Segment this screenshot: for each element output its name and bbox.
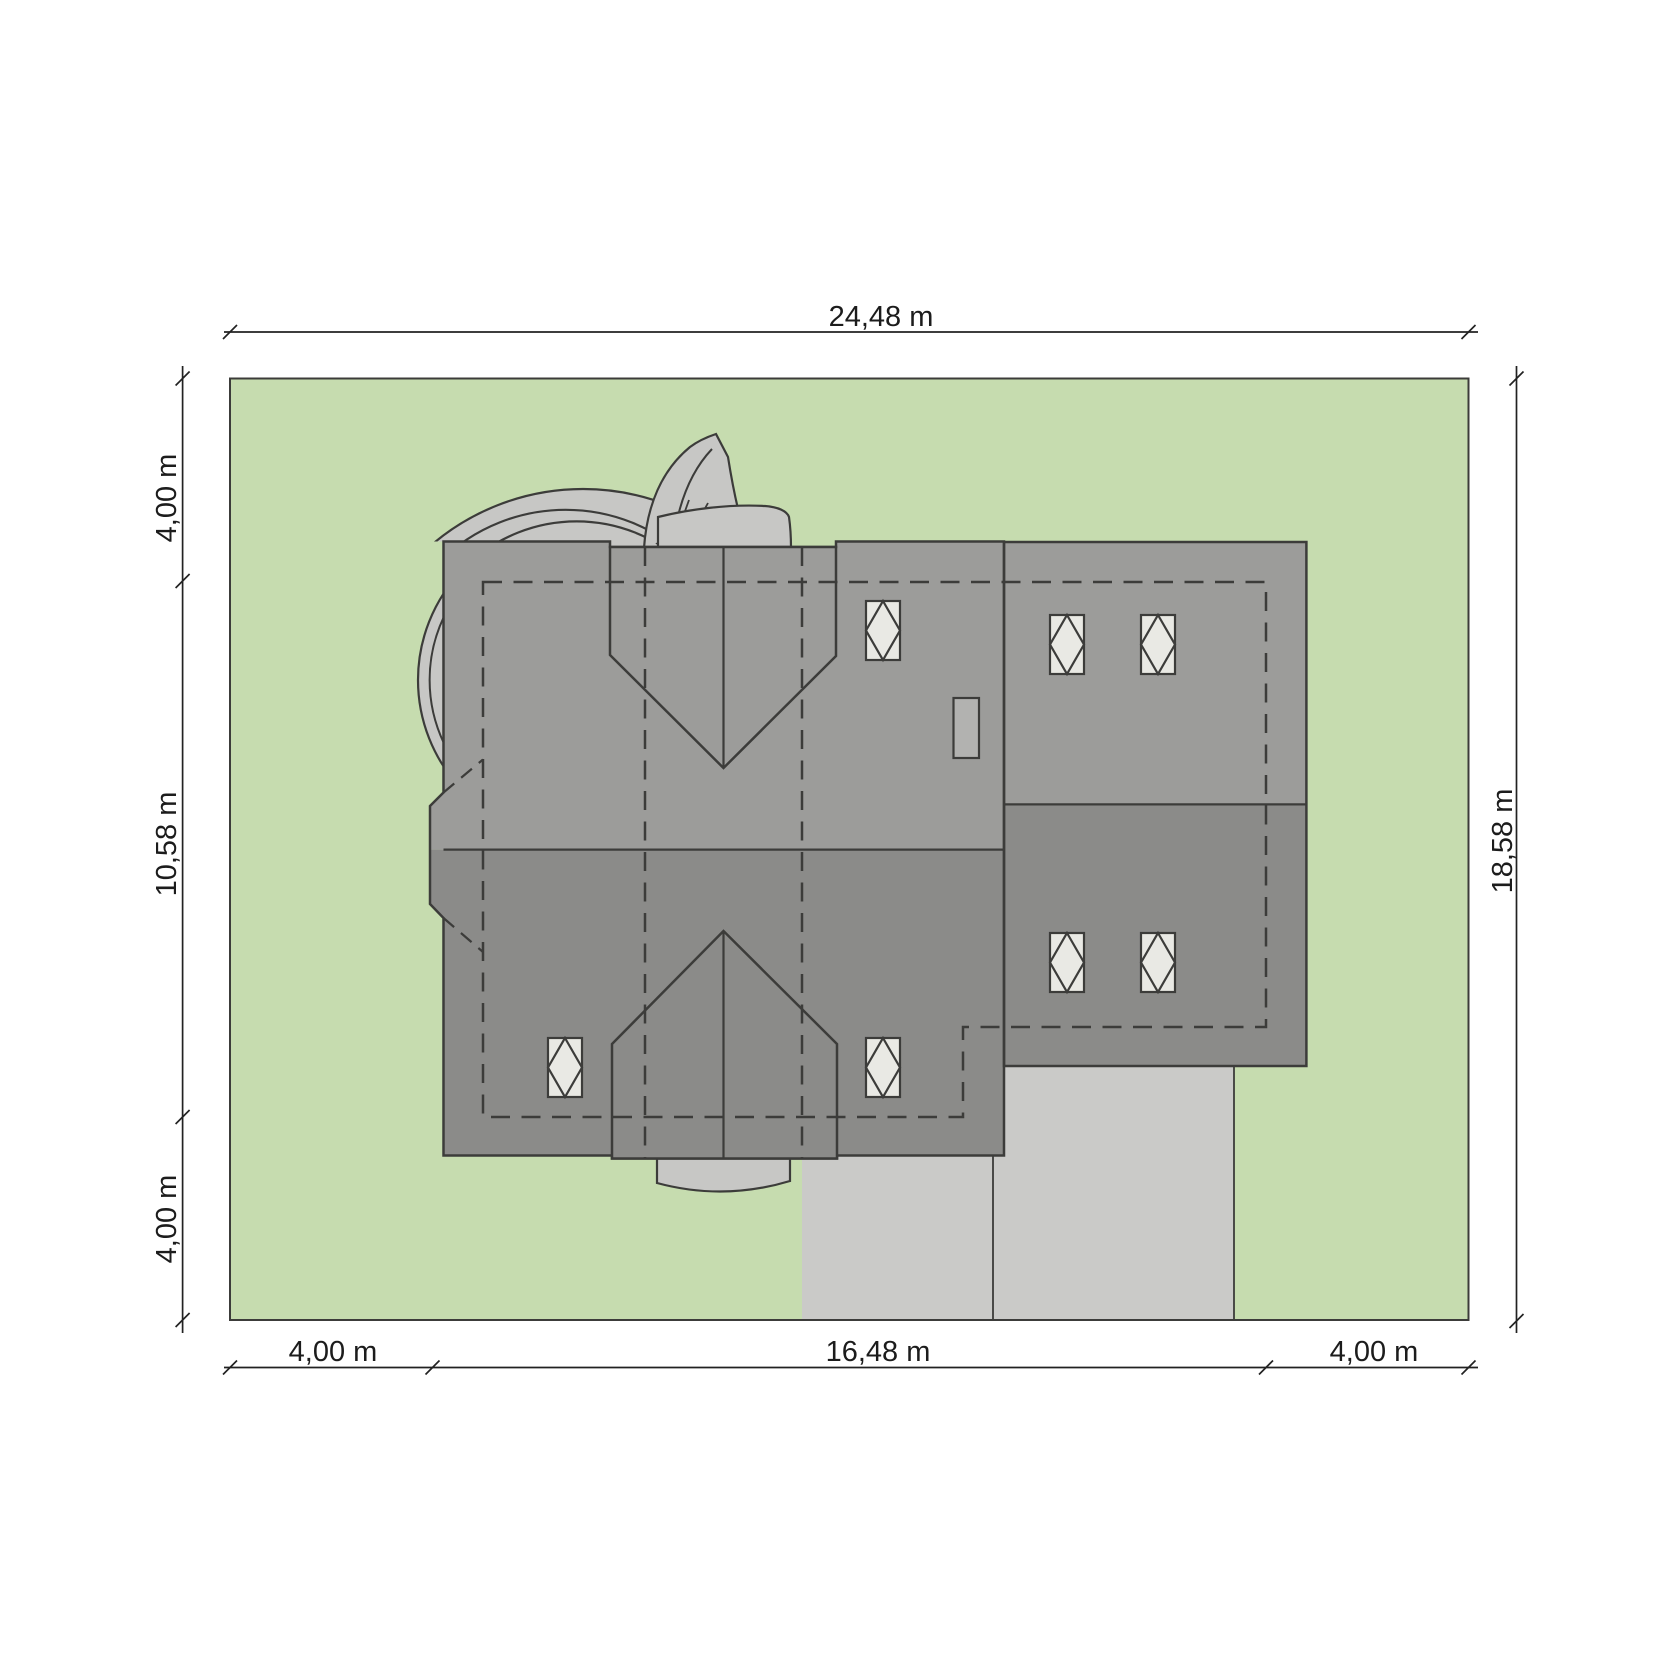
svg-text:16,48 m: 16,48 m xyxy=(826,1336,931,1368)
svg-text:10,58 m: 10,58 m xyxy=(151,792,183,897)
svg-text:4,00 m: 4,00 m xyxy=(151,1175,183,1264)
svg-text:18,58 m: 18,58 m xyxy=(1487,789,1519,894)
svg-text:4,00 m: 4,00 m xyxy=(1330,1336,1419,1368)
svg-text:4,00 m: 4,00 m xyxy=(151,454,183,543)
svg-text:24,48 m: 24,48 m xyxy=(829,301,934,333)
svg-text:4,00 m: 4,00 m xyxy=(289,1336,378,1368)
